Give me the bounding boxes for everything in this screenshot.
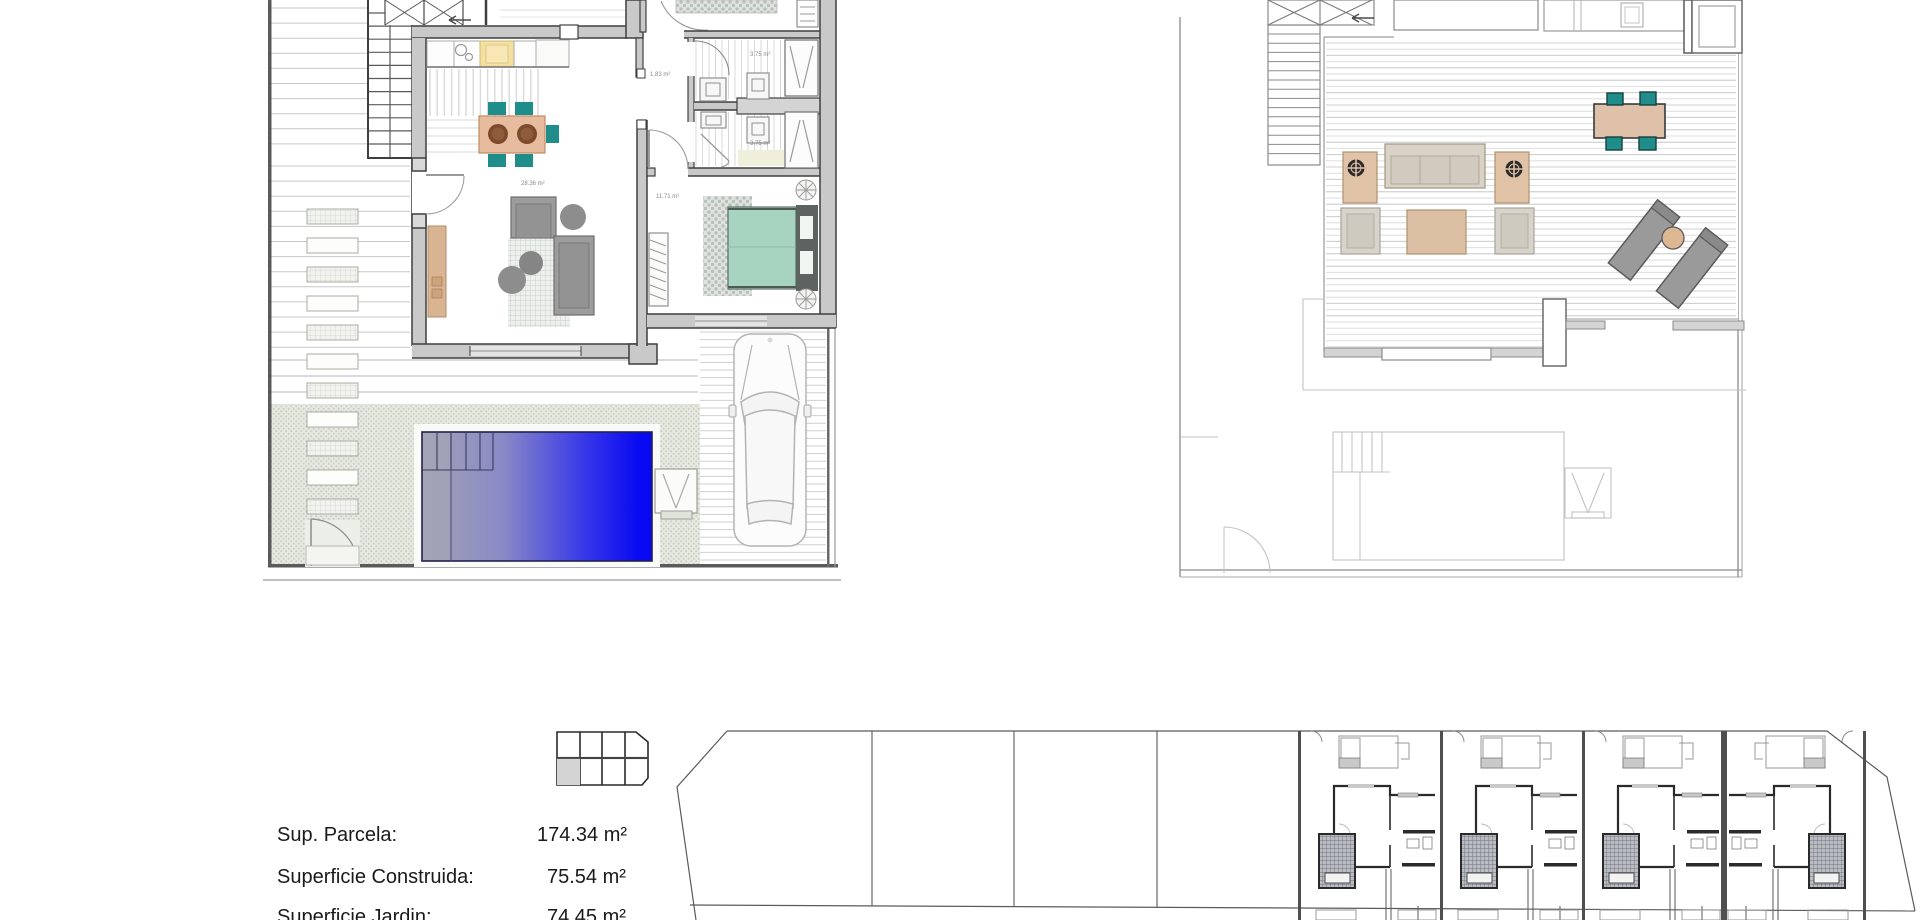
- svg-text:3.75 m²: 3.75 m²: [750, 141, 770, 147]
- svg-text:11.71 m²: 11.71 m²: [656, 194, 679, 200]
- svg-text:74.45 m²: 74.45 m²: [547, 906, 626, 920]
- svg-text:3.75 m²: 3.75 m²: [750, 52, 770, 58]
- svg-text:Superficie Jardin:: Superficie Jardin:: [277, 906, 432, 920]
- svg-text:174.34 m²: 174.34 m²: [537, 824, 627, 846]
- svg-text:Superficie Construida:: Superficie Construida:: [277, 866, 474, 888]
- svg-text:Sup. Parcela:: Sup. Parcela:: [277, 824, 397, 846]
- svg-text:1.83 m²: 1.83 m²: [650, 72, 670, 78]
- svg-text:28.36 m²: 28.36 m²: [521, 181, 545, 187]
- svg-text:75.54 m²: 75.54 m²: [547, 866, 626, 888]
